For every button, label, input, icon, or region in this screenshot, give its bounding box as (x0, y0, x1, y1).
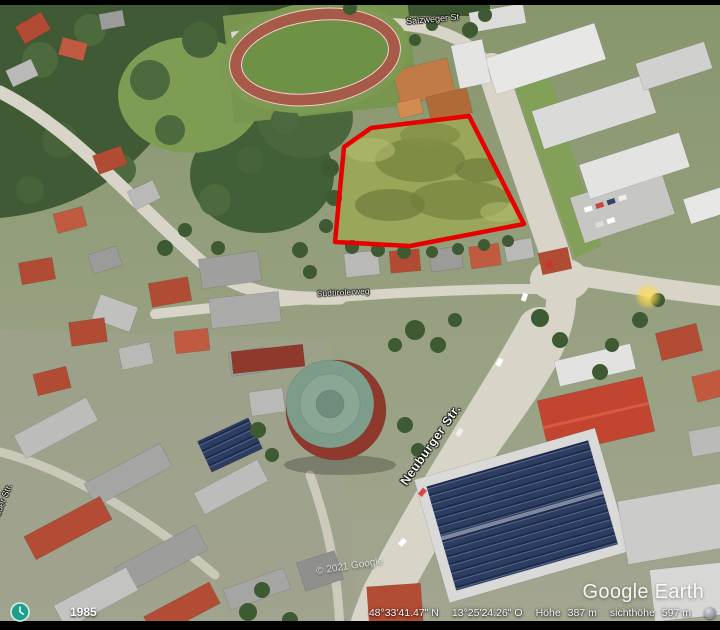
map-canvas[interactable] (0, 0, 720, 630)
historical-imagery-clock-icon (10, 602, 30, 622)
elevation-value: 387 m (568, 607, 597, 619)
eye-altitude-label: sichthöhe (610, 607, 655, 619)
top-letterbox-bar (0, 0, 720, 5)
elevation-label: Höhe (536, 607, 561, 619)
eye-altitude-value: 597 m (662, 607, 691, 619)
latitude-readout: 48°33'41.47" N (369, 607, 439, 619)
status-bar: 48°33'41.47" N 13°25'24.26" O Höhe 387 m… (369, 607, 716, 619)
navigation-controls: N (650, 0, 720, 260)
imagery-year-badge[interactable]: 1985 (10, 602, 97, 622)
google-earth-window: Salzweger St Südtirolerweg Neuburger Str… (0, 0, 720, 630)
highlight-dot (634, 282, 662, 310)
longitude-readout: 13°25'24.26" O (452, 607, 523, 619)
globe-icon (704, 607, 716, 619)
bottom-letterbox-bar (0, 621, 720, 630)
google-earth-logo: Google Earth (583, 581, 704, 604)
imagery-year-text: 1985 (70, 605, 97, 619)
